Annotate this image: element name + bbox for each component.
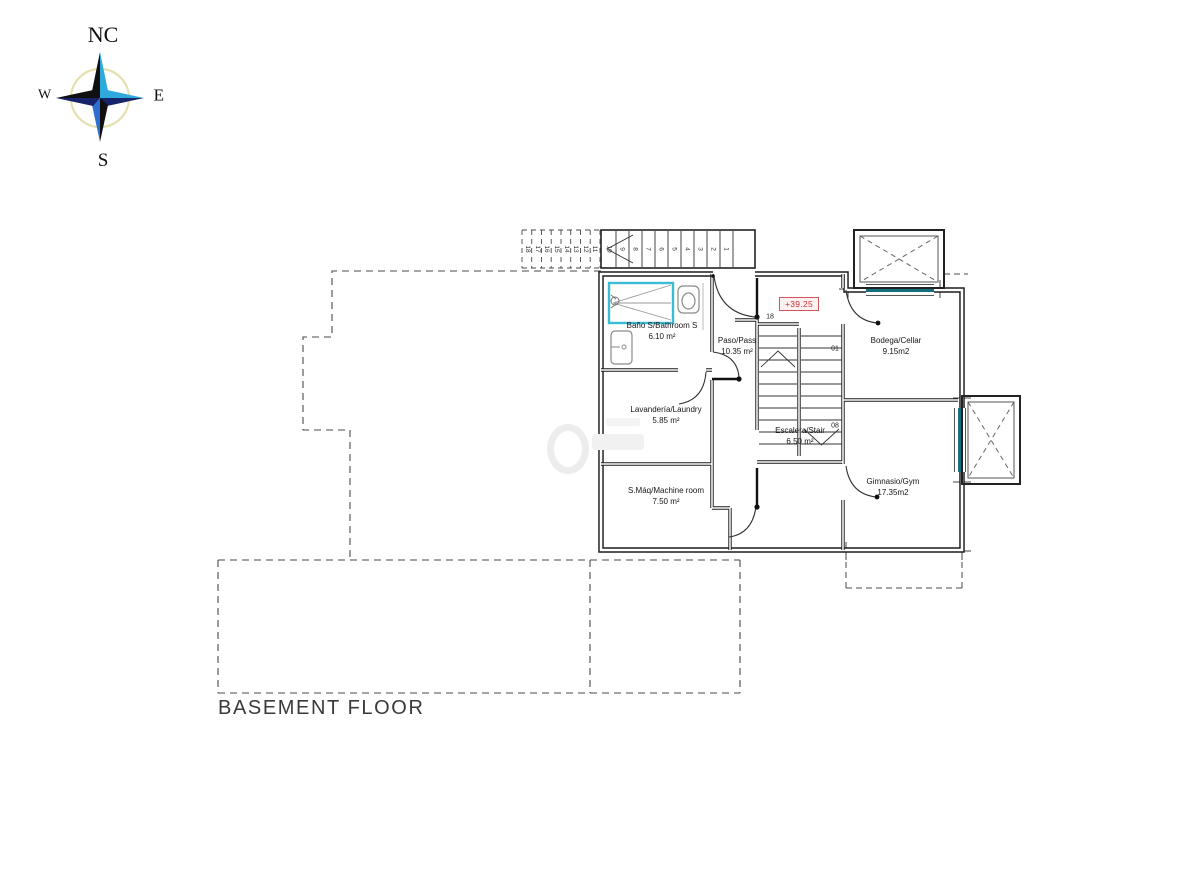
room-area: 10.35 m² [718,347,756,358]
room-name: Baño S/Bathroom S [627,321,698,332]
room-name: Lavandería/Laundry [630,405,701,416]
floor-plan-page: NC S W E [0,0,1200,892]
room-label-pass: Paso/Pass 10.35 m² [718,336,756,358]
stair-up-arrow [761,351,795,367]
axis-ticks [837,280,971,560]
terrace-dashed-outline [303,271,601,560]
room-label-gym: Gimnasio/Gym 17.35m2 [867,477,920,499]
room-label-stair: Escalera/Stair 6.50 m² [775,426,825,448]
room-area: 17.35m2 [867,488,920,499]
room-name: Gimnasio/Gym [867,477,920,488]
elevation-marker: +39.25 [779,297,819,311]
exterior-stair-numbers-dashed: 1817161514131211 [523,231,600,267]
window-right [954,408,967,472]
room-label-laundry: Lavandería/Laundry 5.85 m² [630,405,701,427]
door-arcs [679,276,877,537]
exterior-stair-numbers-solid: 10987654321 [603,231,733,267]
shower-icon [609,283,673,323]
room-name: Bodega/Cellar [871,336,922,347]
room-name: Paso/Pass [718,336,756,347]
room-area: 9.15m2 [871,347,922,358]
room-area: 5.85 m² [630,416,701,427]
toilet-icon [678,286,699,313]
room-name: S.Máq/Machine room [628,486,704,497]
room-label-bathroom: Baño S/Bathroom S 6.10 m² [627,321,698,343]
stair-step-number: 1 [709,243,745,256]
room-name: Escalera/Stair [775,426,825,437]
south-dashed-extension [846,274,968,588]
room-label-cellar: Bodega/Cellar 9.15m2 [871,336,922,358]
stair-step-mark-18: 18 [766,314,774,321]
basement-dashed-outline [218,560,740,693]
stair-step-number: 11 [577,244,613,254]
floor-title: BASEMENT FLOOR [218,697,425,720]
watermark-bar [592,434,644,450]
lightwell-top [854,230,944,288]
watermark-ring [547,424,589,474]
stair-step-mark-01: 01 [831,346,839,353]
room-label-machine: S.Máq/Machine room 7.50 m² [628,486,704,508]
window-top [866,283,934,296]
door-leaves [712,278,757,505]
stair-step-mark-08: 08 [831,423,839,430]
room-area: 6.50 m² [775,437,825,448]
lightwell-right [962,396,1020,484]
room-area: 7.50 m² [628,497,704,508]
room-area: 6.10 m² [627,332,698,343]
